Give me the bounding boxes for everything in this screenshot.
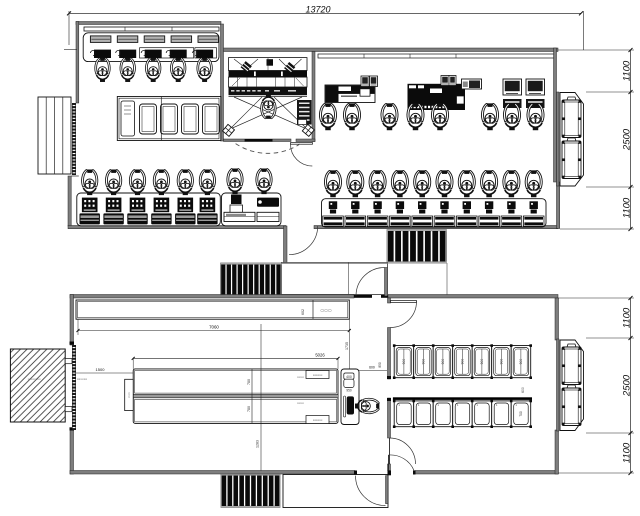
svg-text:7060: 7060 [209,324,219,329]
svg-text:2500: 2500 [622,374,633,397]
svg-text:900: 900 [422,359,426,365]
svg-text:1100: 1100 [622,307,633,328]
svg-text:900: 900 [480,359,484,365]
svg-text:780: 780 [247,406,251,412]
svg-text:1100: 1100 [622,442,633,463]
svg-text:900: 900 [402,359,406,365]
svg-text:5026: 5026 [315,352,325,357]
svg-text:900: 900 [441,359,445,365]
svg-text:1735: 1735 [345,342,349,350]
svg-text:▭▭▭: ▭▭▭ [77,377,88,381]
svg-text:700: 700 [519,411,523,417]
svg-text:400: 400 [346,375,352,379]
svg-text:1283: 1283 [256,440,260,448]
svg-text:780: 780 [247,379,251,385]
svg-text:950: 950 [346,389,352,393]
svg-text:602: 602 [301,309,305,315]
svg-text:600: 600 [369,366,375,370]
svg-text:900: 900 [461,359,465,365]
svg-text:850: 850 [378,362,382,368]
svg-text:1500: 1500 [96,367,106,372]
svg-text:13720: 13720 [305,5,330,15]
svg-text:1100: 1100 [622,60,633,81]
svg-text:900: 900 [519,359,523,365]
svg-text:1100: 1100 [622,197,633,218]
svg-text:▭▭: ▭▭ [127,392,131,398]
svg-text:900: 900 [500,359,504,365]
svg-text:600: 600 [521,387,525,393]
svg-text:▭▭▭: ▭▭▭ [313,373,323,377]
svg-text:▭▭▭▭: ▭▭▭▭ [28,377,41,381]
svg-text:2500: 2500 [622,128,633,151]
svg-text:▭▭▭: ▭▭▭ [320,308,332,313]
svg-text:▭▭▭: ▭▭▭ [313,418,323,422]
svg-text:▭▭: ▭▭ [297,375,304,379]
svg-text:▭▭: ▭▭ [297,401,304,405]
